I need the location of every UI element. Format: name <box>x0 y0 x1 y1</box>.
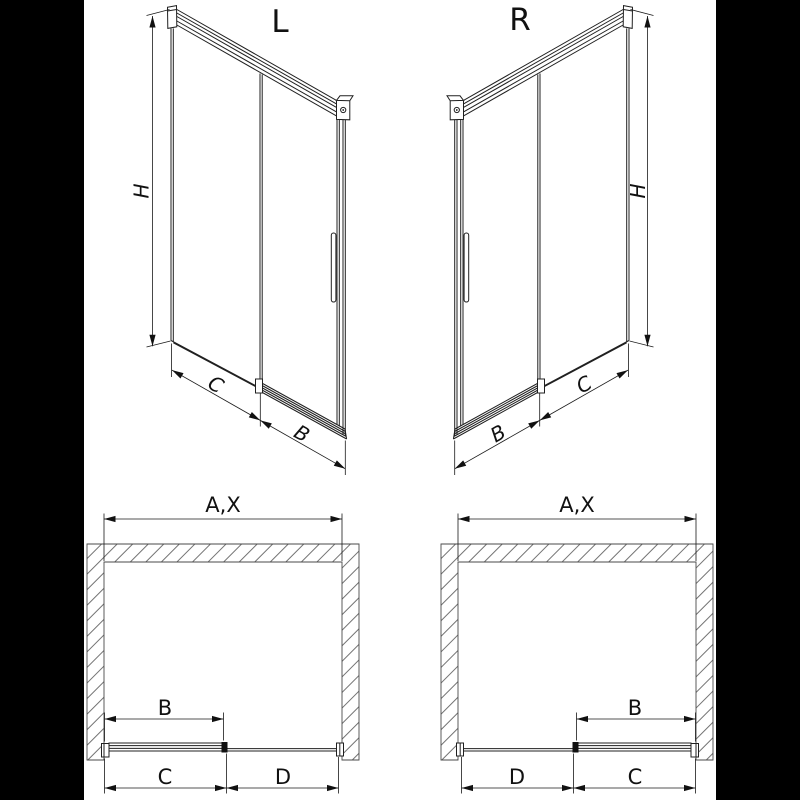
paper-background <box>84 0 716 800</box>
technical-drawing-canvas: L H C B R H C B A,X B C D A,X B D C <box>0 0 800 800</box>
iso-right-h-dim-label: H <box>626 183 650 198</box>
rail-bracket <box>256 379 263 393</box>
iso-left-h-dim-label: H <box>130 183 154 198</box>
plan-right-b-dim-label: B <box>628 696 642 720</box>
rail-left-end-cap <box>168 6 177 29</box>
shower-door-diagram: L H C B R H C B A,X B C D A,X B D C <box>0 0 800 800</box>
plan-right-c-dim-label: C <box>628 765 643 789</box>
door-handle <box>331 233 336 302</box>
iso-right-variant-label: R <box>509 2 531 38</box>
plan-left-c-dim-label: C <box>158 765 173 789</box>
roller-carriage <box>222 742 228 753</box>
plan-left-d-dim-label: D <box>275 765 291 789</box>
plan-left-ax-dim-label: A,X <box>205 493 240 517</box>
plan-right-ax-dim-label: A,X <box>559 493 594 517</box>
sliding-door <box>109 743 222 751</box>
plan-left-b-dim-label: B <box>158 696 172 720</box>
plan-right-d-dim-label: D <box>509 765 525 789</box>
wall-profile-left <box>102 744 110 758</box>
iso-left-variant-label: L <box>271 4 289 40</box>
